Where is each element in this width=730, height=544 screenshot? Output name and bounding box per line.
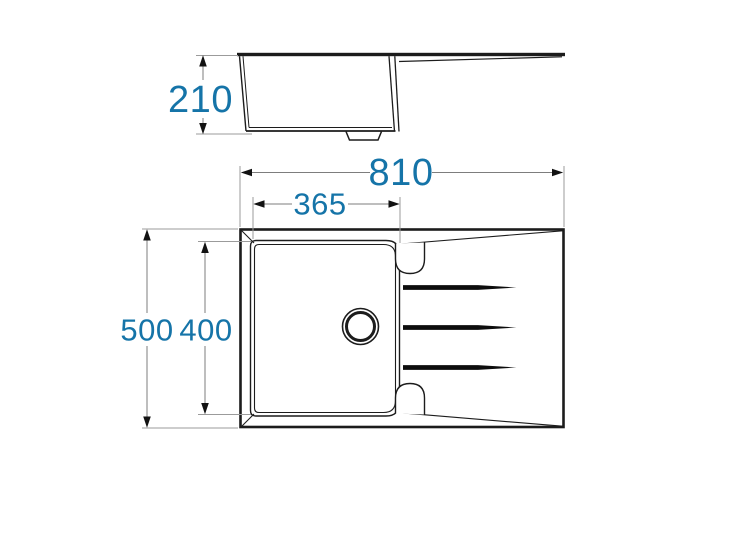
top-plan-view — [241, 230, 564, 428]
dimension-side-height: 210 — [168, 55, 252, 134]
plan-corner-recess-top — [396, 243, 425, 274]
dimension-overall-width: 810 — [240, 152, 564, 227]
plan-drainer-slope-bottom — [401, 413, 563, 426]
side-drain-fitting — [346, 132, 382, 141]
dimension-label-500: 500 — [120, 313, 173, 348]
plan-corner-recess-bottom — [396, 384, 425, 415]
side-bowl-right-wall-inner — [395, 56, 399, 131]
arrow-left-icon — [241, 169, 252, 177]
plan-drain-hole — [343, 309, 379, 345]
drainer-groove — [403, 325, 517, 330]
drawing-canvas: 210 810 365 — [0, 0, 730, 544]
arrow-up-icon — [143, 229, 151, 240]
plan-chamfer-bottom-left — [242, 414, 255, 427]
dimension-label-210: 210 — [168, 79, 233, 121]
sink-technical-drawing: 210 810 365 — [0, 0, 730, 544]
arrow-right-icon — [552, 169, 563, 177]
drainer-groove — [403, 285, 517, 290]
dimension-label-810: 810 — [369, 152, 434, 194]
drain-inner-circle — [347, 313, 375, 341]
side-bowl-left-wall-inner — [243, 56, 249, 127]
arrow-down-icon — [199, 123, 207, 134]
arrow-down-icon — [143, 417, 151, 428]
plan-drainer-slope-top — [401, 231, 563, 244]
plan-bowl-rim-outer — [251, 241, 400, 417]
arrow-right-icon — [389, 200, 400, 207]
side-elevation-view — [237, 53, 565, 140]
side-bowl-left-wall-outer — [240, 56, 247, 131]
side-countertop-line — [237, 53, 565, 56]
arrow-up-icon — [201, 242, 209, 253]
drainer-groove — [403, 365, 517, 370]
side-bowl-right-wall-outer — [389, 56, 395, 131]
side-drainer-underside-line — [399, 57, 562, 62]
dimension-label-365: 365 — [293, 187, 346, 222]
dimension-label-400: 400 — [179, 313, 232, 348]
dimension-bowl-width: 365 — [253, 187, 400, 244]
arrow-down-icon — [201, 403, 209, 414]
plan-drainer-grooves — [403, 285, 517, 370]
arrow-up-icon — [199, 55, 207, 66]
arrow-left-icon — [253, 200, 264, 207]
